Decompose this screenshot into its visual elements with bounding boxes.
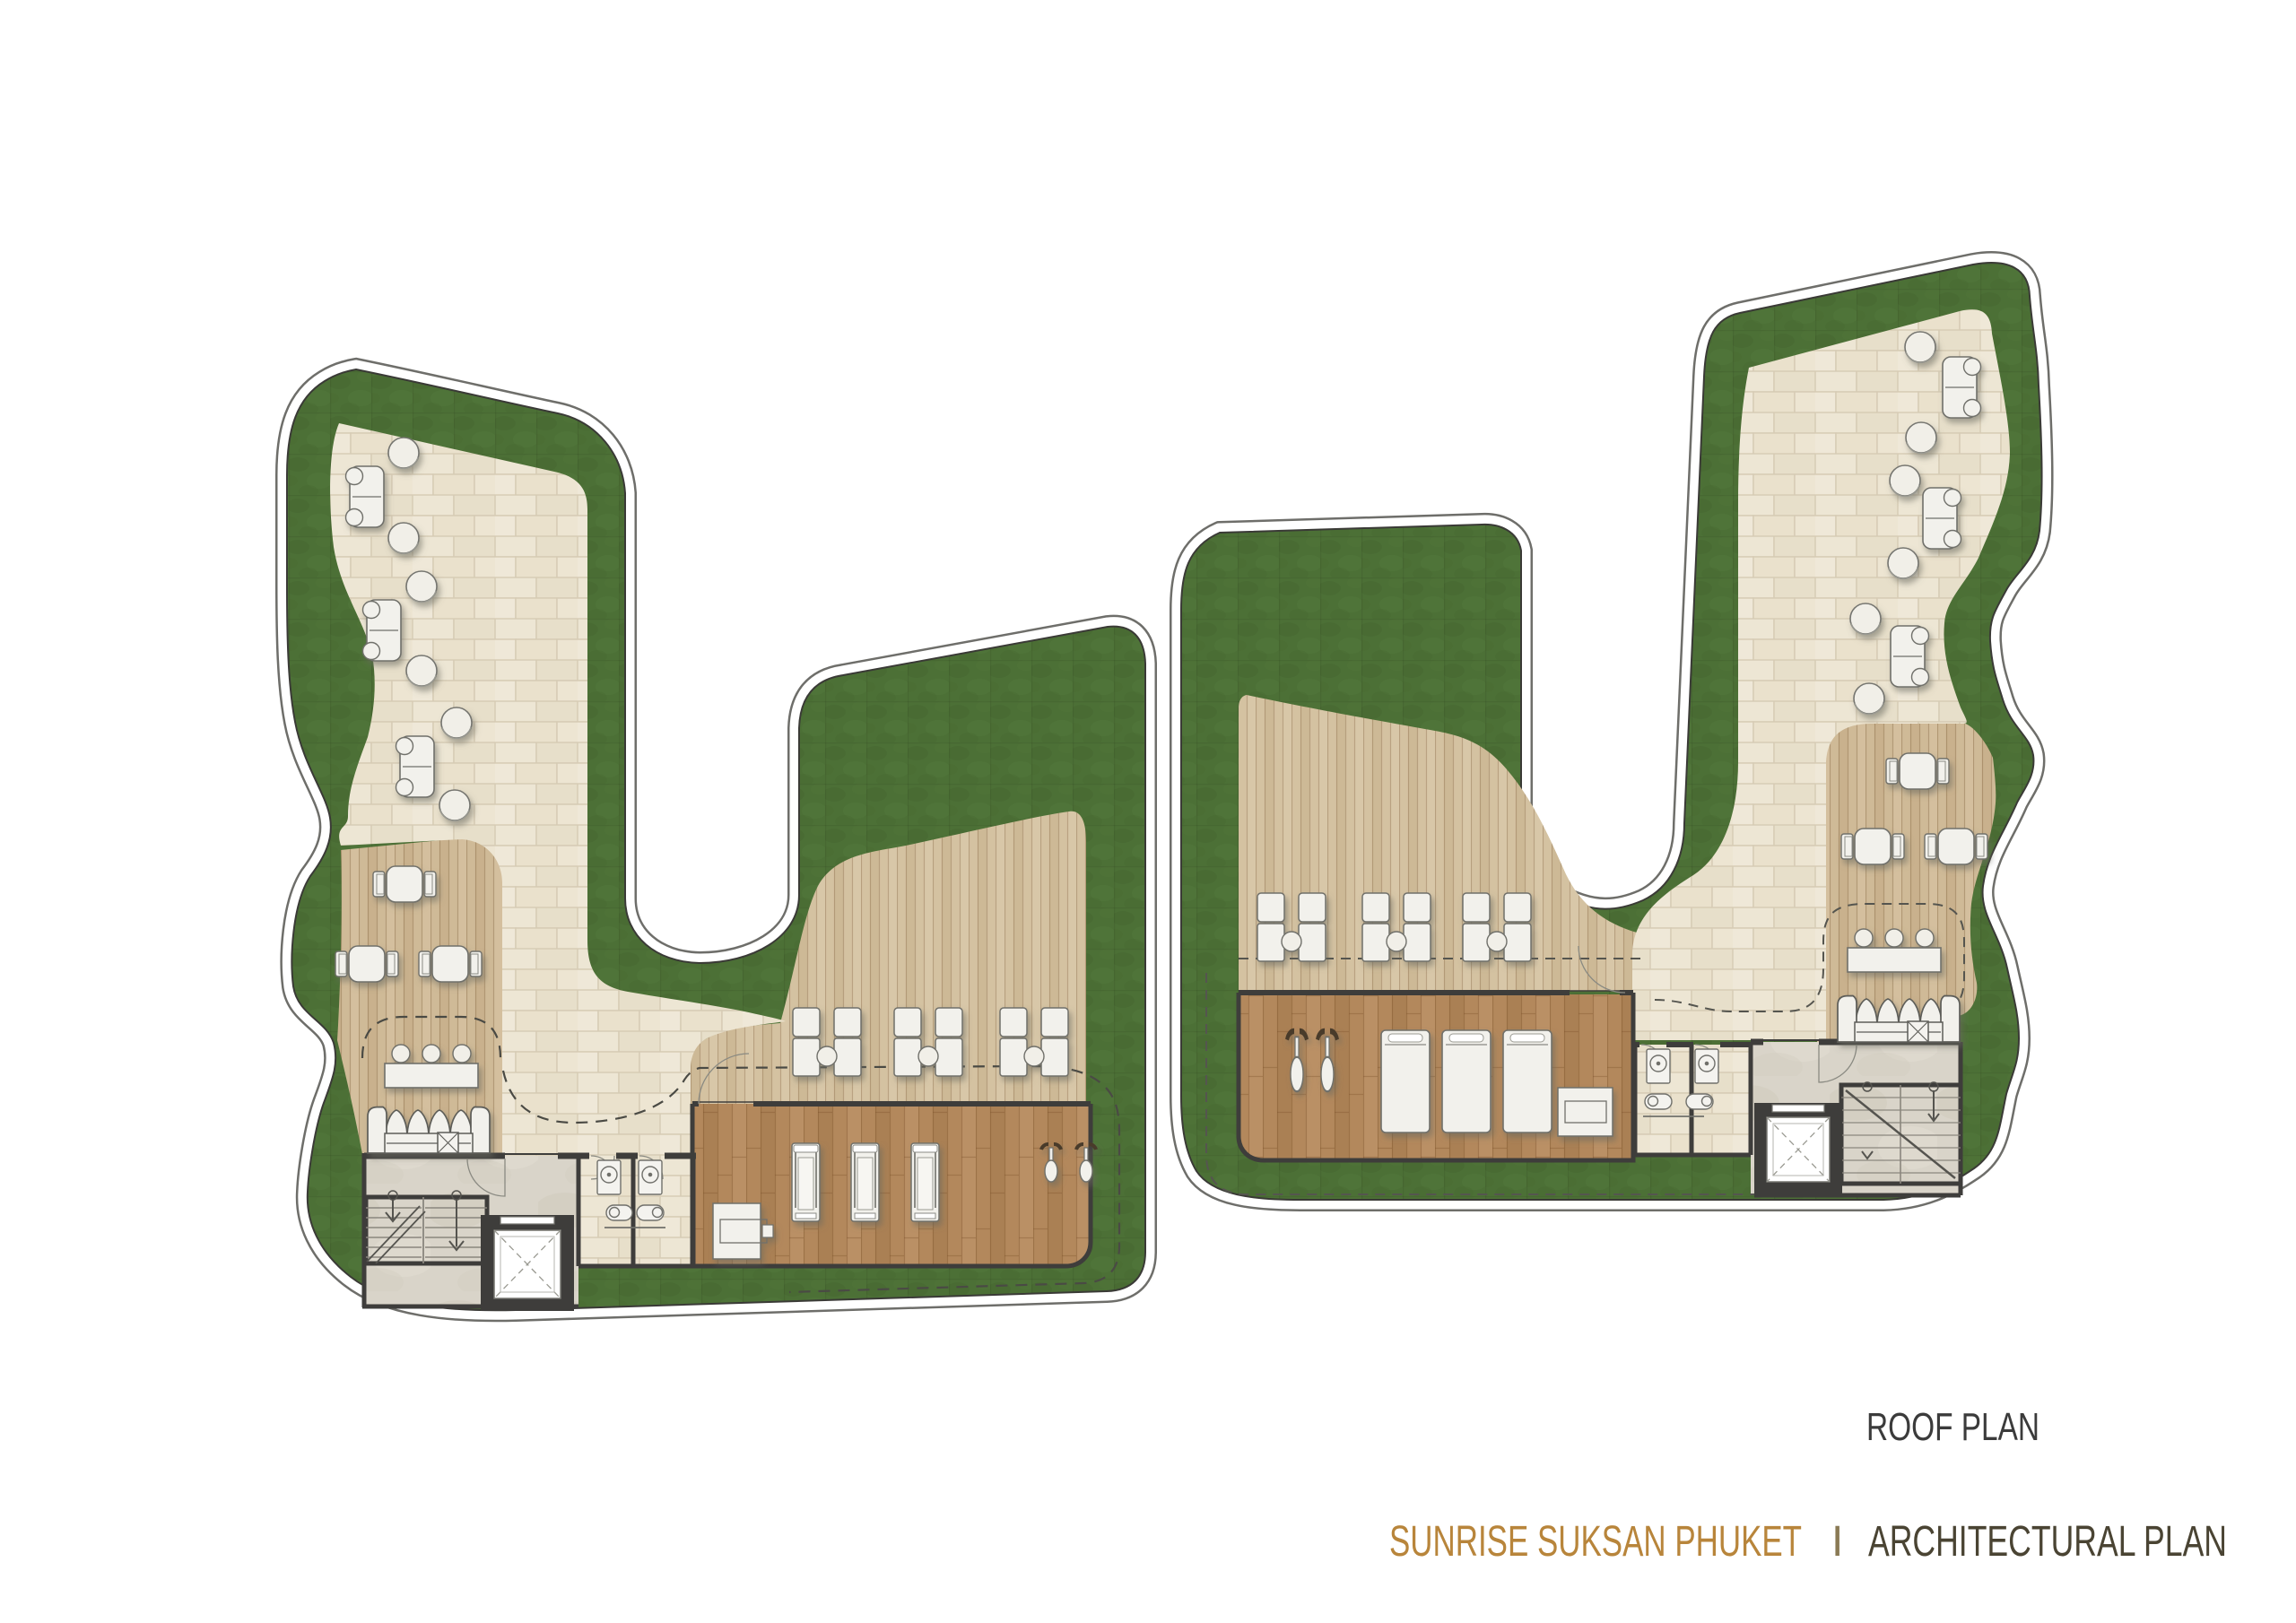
svg-text:ARCHITECTURAL PLAN: ARCHITECTURAL PLAN [1868, 1518, 2227, 1566]
svg-text:I: I [1831, 1518, 1843, 1566]
svg-text:SUNRISE SUKSAN PHUKET: SUNRISE SUKSAN PHUKET [1389, 1518, 1802, 1566]
svg-text:ROOF PLAN: ROOF PLAN [1866, 1405, 2039, 1449]
